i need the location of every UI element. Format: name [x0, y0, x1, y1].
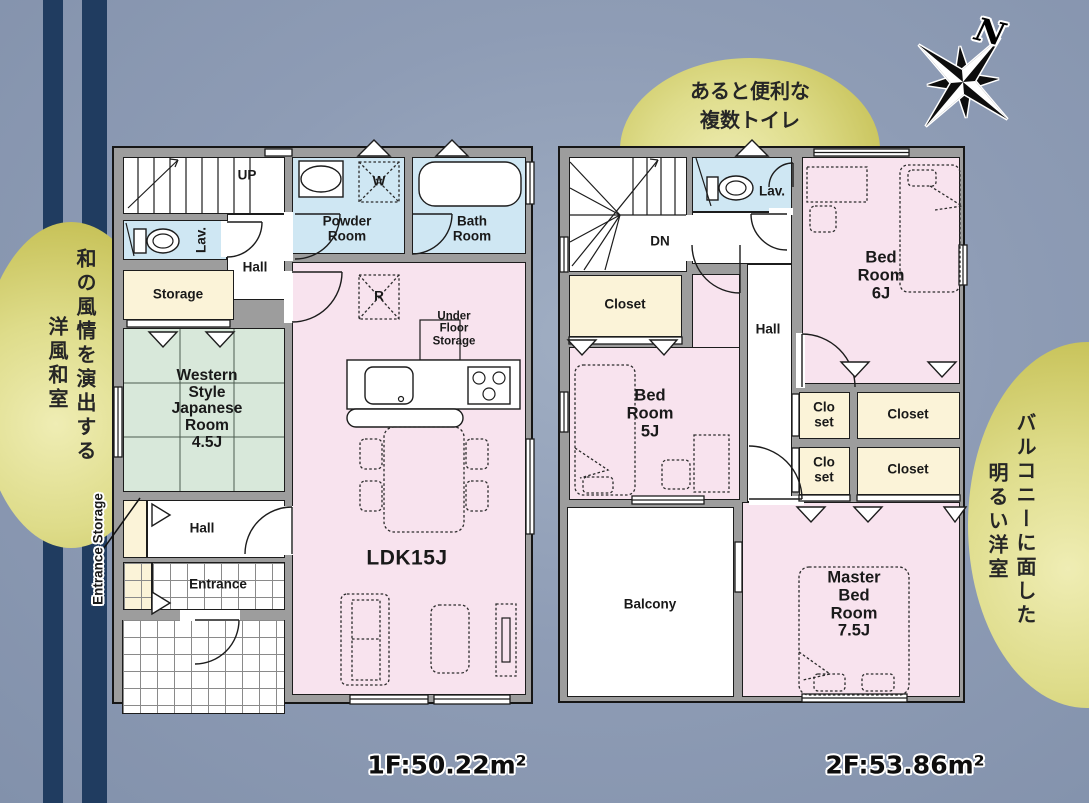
room-hall-upper-1f	[227, 214, 285, 300]
room-entrance-storage-upper	[123, 500, 147, 558]
room-ldk	[292, 262, 526, 695]
room-stairs-2f	[569, 157, 687, 272]
compass-icon	[905, 24, 1021, 140]
room-entrance	[152, 562, 285, 610]
callout-right-main: バルコニーに面した	[1010, 412, 1039, 662]
room-hall-2f	[747, 264, 792, 502]
room-powder	[292, 157, 405, 254]
room-closet-1	[857, 392, 960, 439]
room-entrance-storage-lower	[123, 562, 152, 610]
room-japanese	[123, 328, 285, 492]
room-balcony	[567, 507, 734, 697]
room-corridor-2f	[692, 212, 792, 264]
room-bath	[412, 157, 526, 254]
room-stairs-1f	[123, 157, 285, 214]
room-closet-small-1	[799, 392, 850, 439]
room-storage-1f	[123, 270, 234, 320]
room-bed6	[802, 157, 960, 384]
room-closet-2	[857, 447, 960, 495]
room-bed5-upper-lobe	[692, 274, 740, 350]
area-1f: 1F:50.22m²	[367, 751, 526, 780]
callout-top-text: あると便利な 複数トイレ	[630, 78, 870, 136]
callout-right-sub: 明るい洋室	[982, 462, 1011, 612]
room-bed5	[569, 347, 740, 500]
room-lav-2f	[692, 157, 792, 212]
room-hall-lower-1f	[147, 500, 285, 558]
floor2-plan: DN Lav. Hall Closet Bed Room 6J Bed Room…	[558, 146, 965, 703]
floor1-plan: UP Lav. Hall W Powder Room Bath Room Sto…	[112, 146, 533, 704]
room-closet-small-2	[799, 447, 850, 495]
callout-left-sub: 洋風和室	[42, 316, 71, 476]
floorplan-canvas: あると便利な 複数トイレ 和の風情を演出する 洋風和室 バルコニーに面した 明る…	[0, 0, 1089, 803]
callout-left-main: 和の風情を演出する	[70, 248, 99, 524]
porch	[122, 620, 285, 714]
room-master	[742, 502, 960, 697]
room-closet-2f	[569, 275, 682, 337]
compass-north-label: N	[971, 10, 1009, 54]
room-lav-1f	[123, 220, 227, 260]
area-2f: 2F:53.86m²	[825, 751, 984, 780]
